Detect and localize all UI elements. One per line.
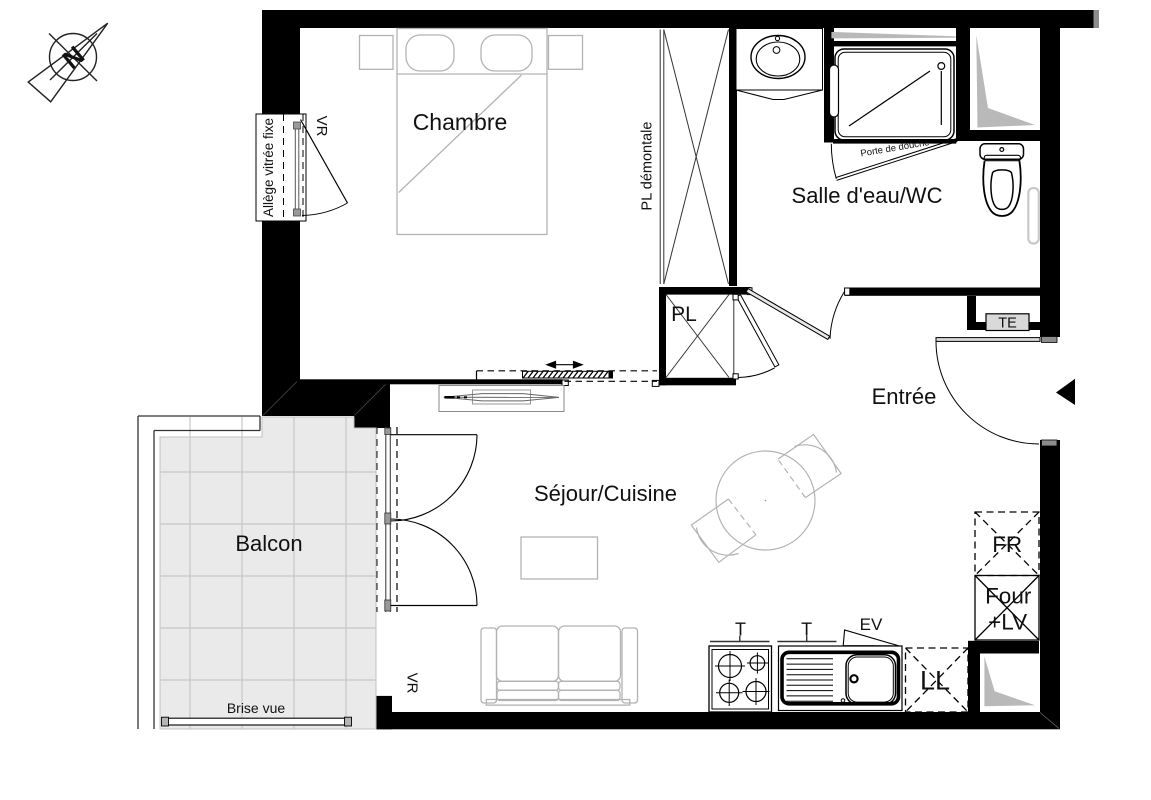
svg-text:FR: FR <box>992 532 1022 557</box>
svg-text:Entrée: Entrée <box>872 384 937 409</box>
svg-text:Chambre: Chambre <box>413 109 508 135</box>
svg-text:VR: VR <box>313 116 330 137</box>
svg-text:Brise vue: Brise vue <box>227 700 286 716</box>
svg-text:VR: VR <box>404 673 421 694</box>
svg-text:LL: LL <box>920 666 950 696</box>
svg-text:Balcon: Balcon <box>235 531 302 556</box>
svg-text:TE: TE <box>998 316 1017 332</box>
svg-text:Salle d'eau/WC: Salle d'eau/WC <box>792 183 943 208</box>
svg-text:Four: Four <box>985 583 1032 608</box>
svg-text:+LV: +LV <box>988 610 1027 635</box>
svg-text:EV: EV <box>860 615 883 634</box>
svg-text:Séjour/Cuisine: Séjour/Cuisine <box>534 481 677 506</box>
svg-text:PL: PL <box>671 303 697 326</box>
svg-text:Allège vitrée fixe: Allège vitrée fixe <box>261 118 276 217</box>
svg-text:T: T <box>801 620 812 640</box>
svg-text:T: T <box>735 620 746 640</box>
svg-text:PL démontale: PL démontale <box>640 122 656 211</box>
